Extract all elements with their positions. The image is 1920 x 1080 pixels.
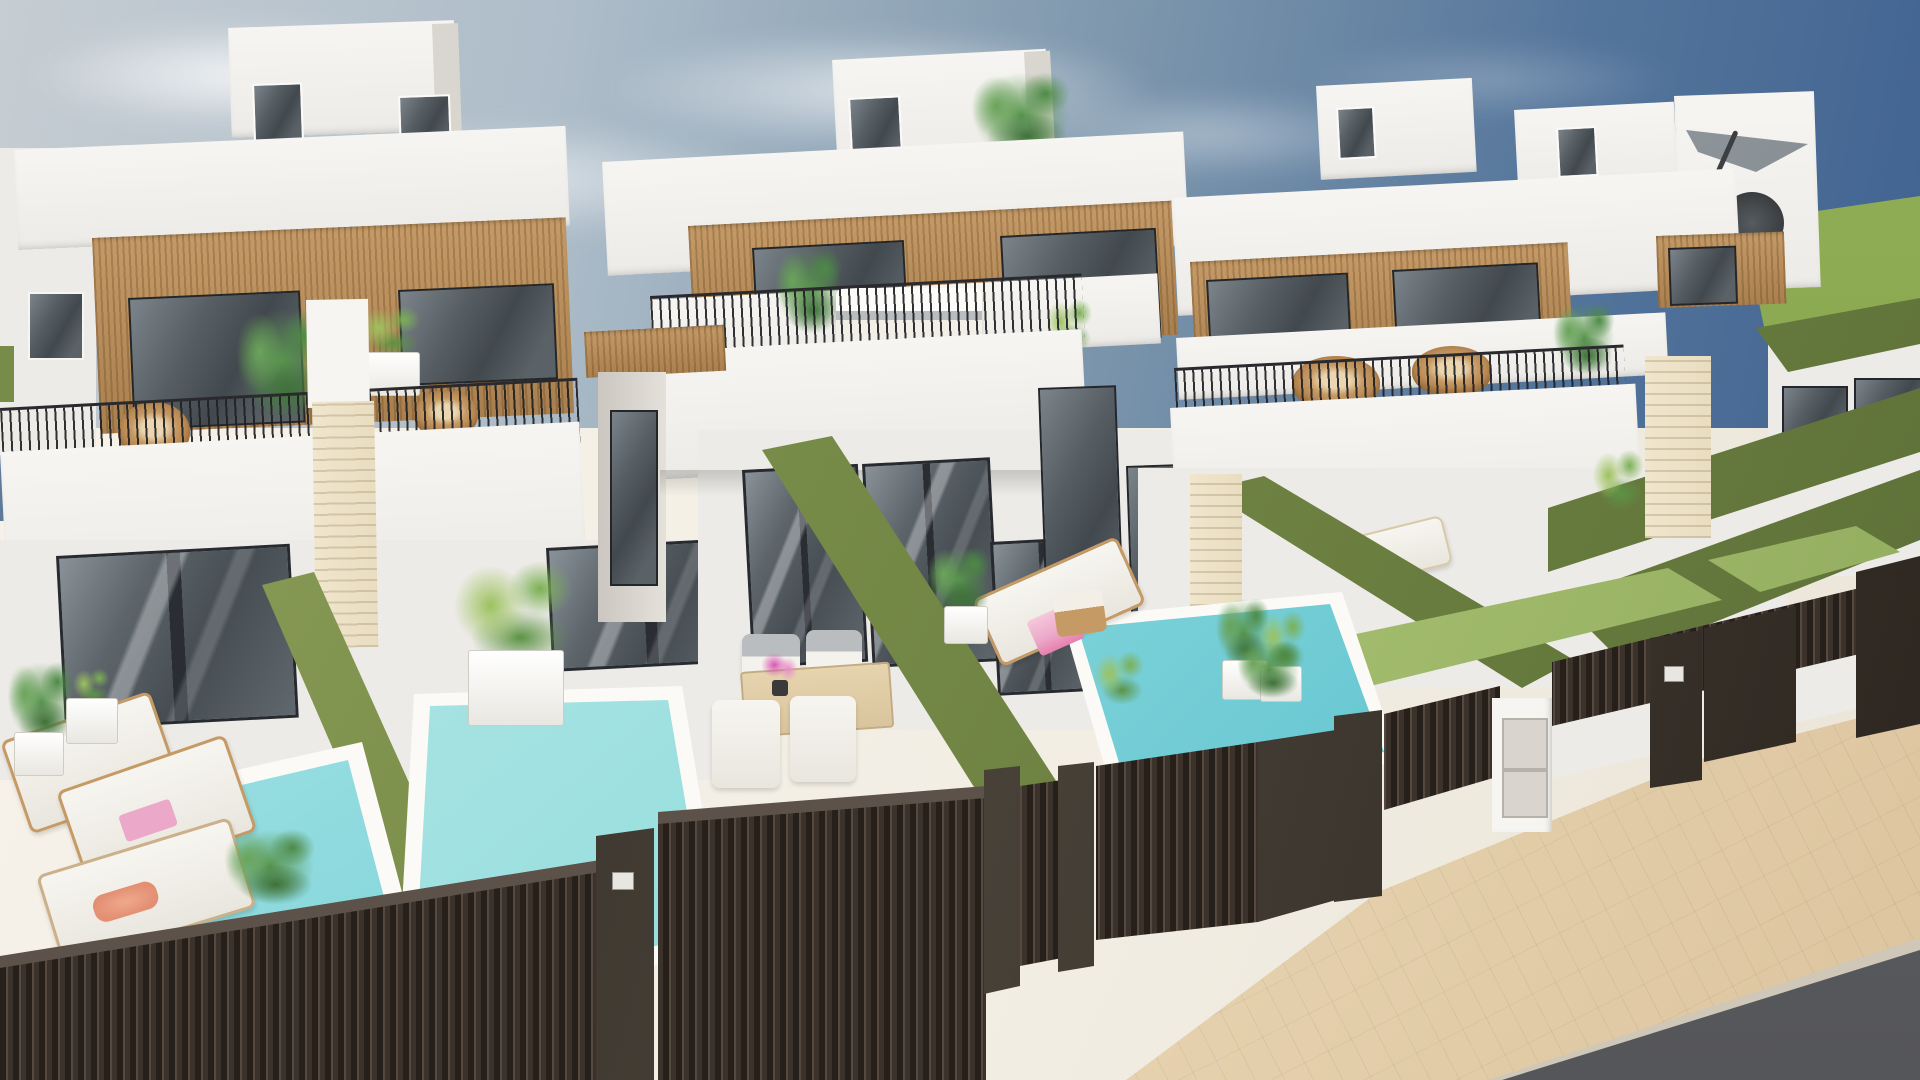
white-planter-box	[468, 650, 564, 726]
dining-chair	[790, 696, 856, 782]
meter-door	[1502, 718, 1548, 770]
right-roofbox-door	[1336, 106, 1377, 160]
entry-door	[610, 410, 658, 586]
plant-over-fence	[1088, 644, 1150, 710]
plant-behind-fence	[214, 820, 326, 912]
dining-chair	[712, 700, 780, 788]
meter-door	[1502, 770, 1548, 818]
side-stool	[1052, 589, 1107, 638]
left-roofbox-door	[252, 82, 304, 144]
neighbor-hedge-sliver	[0, 346, 14, 402]
right-roofbox-door	[1556, 126, 1599, 178]
plant-pot	[944, 606, 988, 644]
travertine-pillar	[1645, 356, 1711, 538]
chimney-cap	[306, 299, 370, 408]
flower-vase	[772, 680, 788, 696]
entry-wood-soffit	[584, 325, 726, 378]
plant-over-fence	[1230, 634, 1308, 704]
left-side-window	[28, 292, 84, 360]
plant-pot	[66, 698, 118, 744]
yard-plant	[1586, 442, 1650, 516]
architectural-render	[0, 0, 1920, 1080]
far-right-window	[1668, 246, 1738, 306]
letterbox-plaque	[1664, 666, 1684, 682]
plant-pot	[14, 732, 64, 776]
letterbox-plaque	[612, 872, 634, 890]
